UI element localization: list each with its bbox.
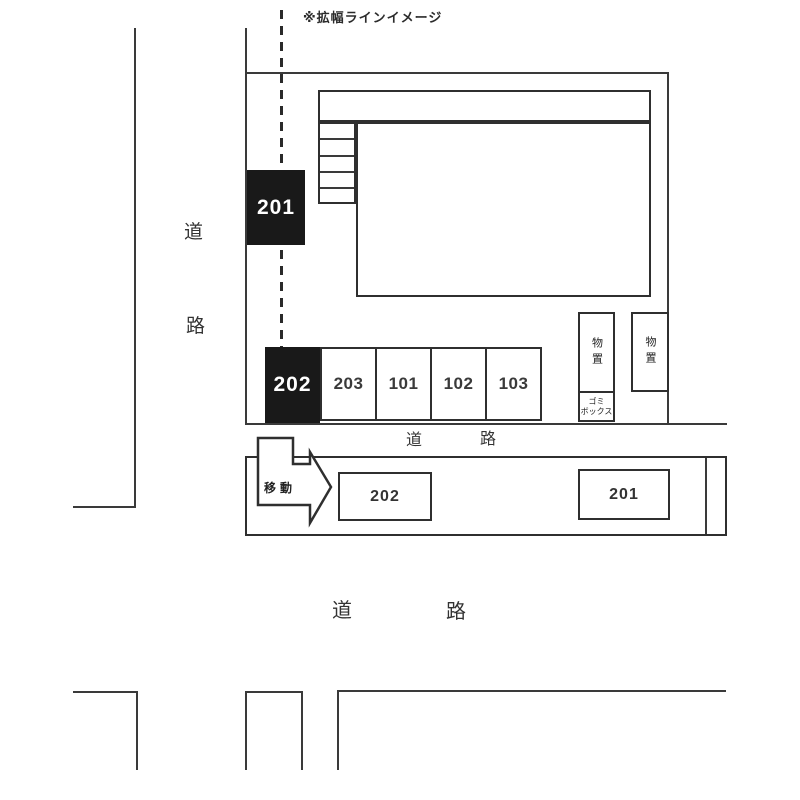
move-arrow-label: 移動 [264,482,296,494]
site-plan-diagram: ※拡幅ラインイメージ 道 路 201 202 203 101 102 103 物… [0,0,800,800]
move-arrow [0,0,800,800]
